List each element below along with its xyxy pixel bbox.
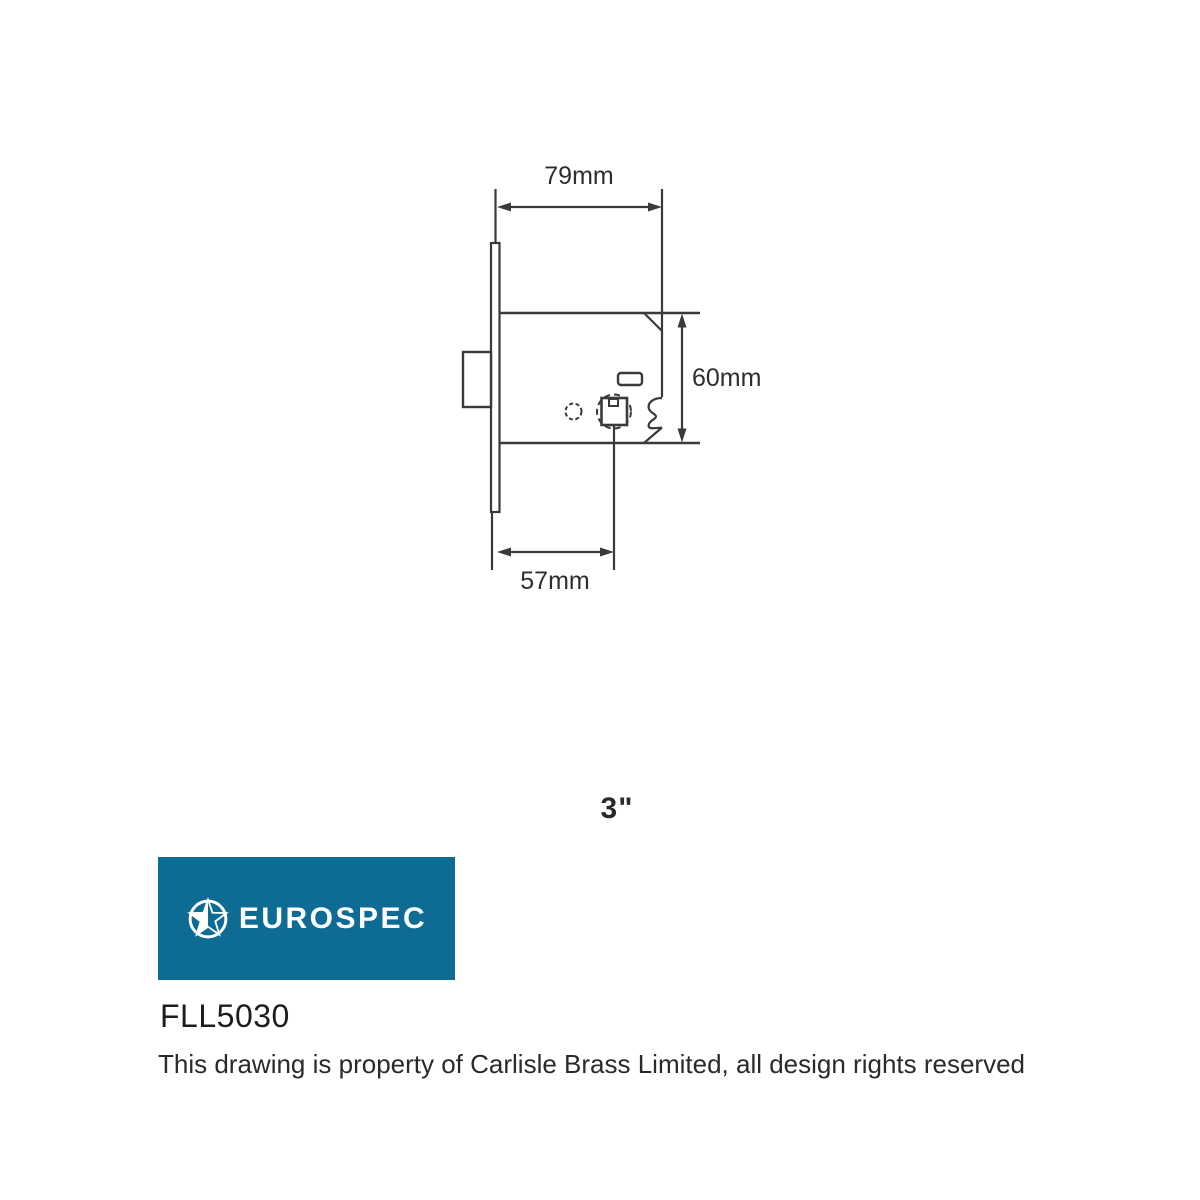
eurospec-logo: EUROSPEC <box>158 857 455 980</box>
copyright-text: This drawing is property of Carlisle Bra… <box>158 1046 1078 1082</box>
case-chamfer-top <box>644 313 662 331</box>
dim-backset-arrow-right <box>600 548 614 557</box>
follower-square <box>602 398 628 425</box>
dim-height-arrow-top <box>678 314 687 328</box>
drawing-sheet: 79mm 60mm 57mm 3" EUROSPEC FLL5030 This … <box>0 0 1200 1200</box>
size-label: 3" <box>557 792 677 826</box>
dim-backset-arrow-left <box>497 548 511 557</box>
star-circle-icon <box>186 897 230 941</box>
small-hole-circle <box>566 404 582 420</box>
follower-slot <box>618 373 642 385</box>
dim-width-arrow-left <box>497 203 511 212</box>
logo-brand-text: EUROSPEC <box>239 904 427 934</box>
dim-backset-label: 57mm <box>495 567 615 595</box>
dim-width-label: 79mm <box>509 162 649 190</box>
dim-height-label: 60mm <box>692 364 761 392</box>
dim-height-arrow-bottom <box>678 429 687 443</box>
faceplate <box>491 243 500 512</box>
product-code: FLL5030 <box>160 996 290 1036</box>
case-chamfer-bottom <box>644 428 662 444</box>
dim-width-arrow-right <box>648 203 662 212</box>
latch-bolt <box>463 352 491 407</box>
case-edge-notch <box>649 398 662 428</box>
